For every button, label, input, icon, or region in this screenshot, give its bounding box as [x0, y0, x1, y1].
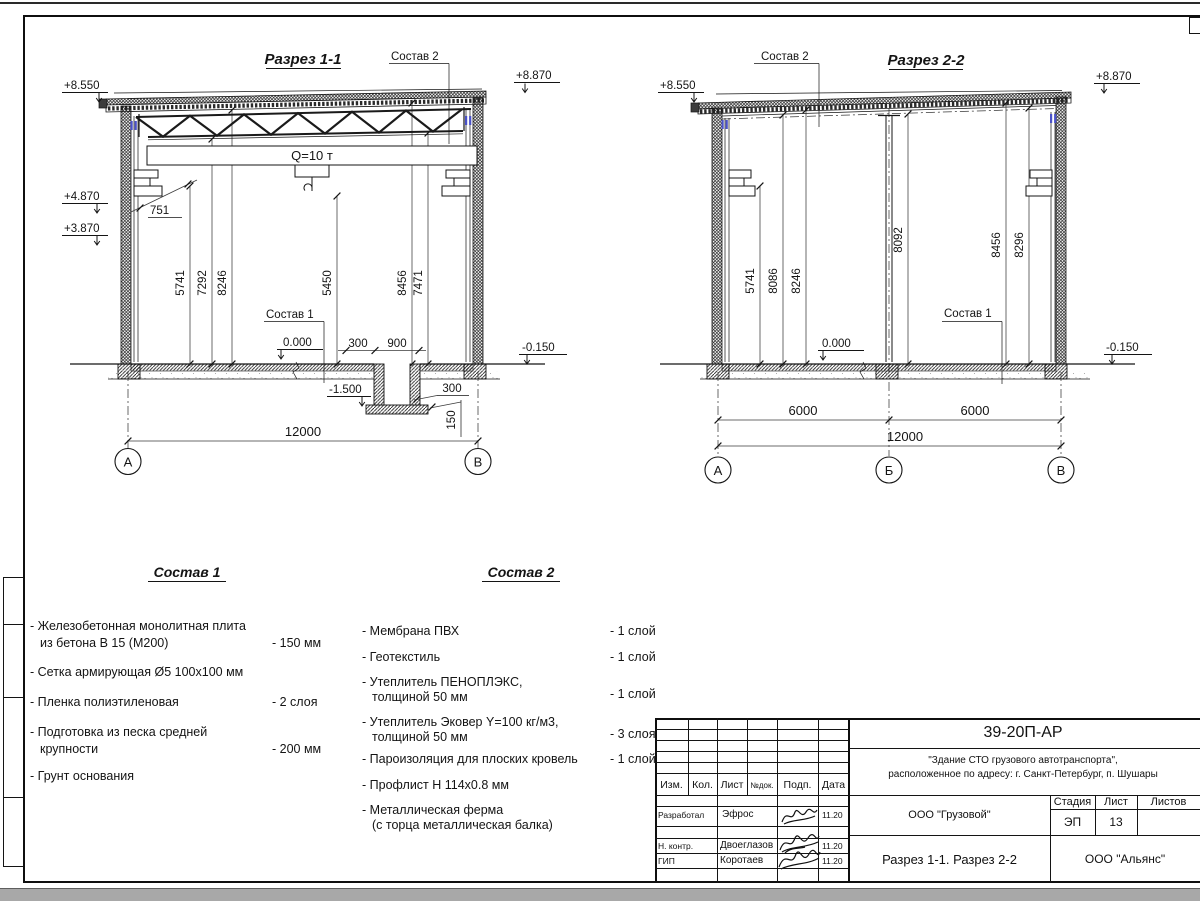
sostav1-item3-value: - 2 слоя	[272, 695, 317, 709]
section-2-2: Разрез 2-2	[658, 51, 1152, 483]
pit-width-label: 900	[387, 338, 406, 350]
sheets-label: Листов	[1137, 795, 1200, 809]
sostav2-item4-value: - 3 слоя	[610, 727, 655, 741]
bay2-6000: 6000	[961, 403, 990, 418]
signature-3	[775, 845, 823, 873]
section2-span: 6000 6000 12000 А Б В	[705, 372, 1074, 483]
axis2-b-bub: Б	[885, 463, 894, 478]
sostav1-item2-line1: - Сетка армирующая Ø5 100х100 мм	[30, 665, 243, 679]
stamp-l-r2	[655, 740, 849, 741]
section1-dim-lines: 5741 7292 8246 5450 8456 7471	[175, 100, 431, 368]
sostav1-title: Состав 1	[148, 564, 226, 582]
stamp-doc-bottom	[849, 748, 1200, 749]
elev2-8550: +8.550	[660, 80, 696, 92]
span2-12000: 12000	[887, 429, 923, 444]
sostav1-item1-line2: из бетона В 15 (М200)	[40, 636, 168, 650]
doc-number: 39-20П-АР	[849, 720, 1197, 746]
row1-role: Разработал	[658, 810, 704, 820]
sostav2-item5: - Пароизоляция для плоских кровель	[362, 752, 578, 766]
section2-consoles	[729, 170, 1052, 196]
sostav1-item3-line1: - Пленка полиэтиленовая	[30, 695, 179, 709]
callout2-sostav2: Состав 2	[761, 51, 809, 63]
elev-m1500: -1.500	[329, 384, 362, 396]
elev-8870: +8.870	[516, 70, 552, 82]
dim-7292: 7292	[197, 270, 209, 296]
sostav2-item2: - Геотекстиль	[362, 650, 440, 664]
sostav1-item5-line1: - Грунт основания	[30, 769, 134, 783]
dim2-8456: 8456	[991, 232, 1003, 258]
sheet-value: 13	[1095, 809, 1137, 835]
col-ndok-label: №док.	[747, 776, 777, 794]
stage-value: ЭП	[1050, 809, 1095, 835]
drawing-title: Разрез 1-1. Разрез 2-2	[849, 835, 1050, 883]
sostav1-item1-value: - 150 мм	[272, 636, 321, 650]
dim-7471: 7471	[413, 270, 425, 296]
section2-floor	[660, 362, 1135, 379]
section2-elevations: +8.550 +8.870 0.000 -0.150	[658, 71, 1152, 364]
section-1-1: Разрез 1-1	[62, 51, 567, 475]
sostav1-item4-line1: - Подготовка из песка средней	[30, 725, 207, 739]
dim2-8296: 8296	[1014, 232, 1026, 258]
sostav2-item1-value: - 1 слой	[610, 624, 656, 638]
row3-name: Коротаев	[720, 855, 763, 866]
dim-8246: 8246	[217, 270, 229, 296]
axis2-a-bubble: А	[714, 463, 723, 478]
dim2-8086: 8086	[768, 268, 780, 294]
elev2-0000: 0.000	[822, 338, 851, 350]
row2-role: Н. контр.	[658, 841, 693, 851]
sostav2-item4: - Утеплитель Эковер Y=100 кг/м3,	[362, 715, 558, 729]
axis-b-bubble: В	[474, 455, 483, 470]
section1-title: Разрез 1-1	[264, 51, 341, 68]
row1-date: 11.20	[822, 810, 843, 820]
stamp-left	[655, 718, 657, 883]
sostav2-item4b: толщиной 50 мм	[372, 730, 468, 744]
dim2-8246: 8246	[791, 268, 803, 294]
floor-slab	[70, 362, 545, 414]
callout-sostav2: Состав 2	[391, 51, 439, 63]
stamp-l-r4	[655, 762, 849, 763]
elev-0000: 0.000	[283, 337, 312, 349]
sostav2-item5-value: - 1 слой	[610, 752, 656, 766]
drawing-sheet: Разрез 1-1	[0, 0, 1200, 900]
pit-slab-label: 150	[446, 410, 458, 429]
stamp-l-r5	[655, 773, 849, 774]
sostav1-item4-line2: крупности	[40, 742, 98, 756]
section2-title: Разрез 2-2	[887, 52, 965, 69]
row2-date: 11.20	[822, 841, 843, 851]
stage-label: Стадия	[1050, 795, 1095, 809]
elev2-m0150: -0.150	[1106, 342, 1139, 354]
crane-beam: Q=10 т	[147, 146, 477, 191]
pit-wall-label: 300	[442, 383, 461, 395]
stamp-l-r3	[655, 751, 849, 752]
project-line2: расположенное по адресу: г. Санкт-Петерб…	[849, 768, 1197, 781]
dim-8456: 8456	[397, 270, 409, 296]
col-data-label: Дата	[818, 776, 849, 794]
sostav2-item3b: толщиной 50 мм	[372, 690, 468, 704]
crane-capacity-label: Q=10 т	[291, 148, 333, 163]
stamp-col-kol	[717, 718, 718, 883]
sostav1-item4-value: - 200 мм	[272, 742, 321, 756]
stamp-sig-r2	[655, 826, 849, 827]
dim-5741: 5741	[175, 270, 187, 296]
sostav2-item2-value: - 1 слой	[610, 650, 656, 664]
stamp-sig-r1	[655, 806, 849, 807]
sostav2-title: Состав 2	[482, 564, 560, 582]
sostav2-item3: - Утеплитель ПЕНОПЛЭКС,	[362, 675, 522, 689]
dim2-8092: 8092	[893, 227, 905, 253]
row3-date: 11.20	[822, 856, 843, 866]
roof-truss	[136, 107, 471, 140]
elev-8550: +8.550	[64, 80, 100, 92]
axis-a-bubble: А	[124, 455, 133, 470]
col-list-label: Лист	[717, 776, 747, 794]
stamp-l-r1	[655, 729, 849, 730]
sostav2-item1: - Мембрана ПВХ	[362, 624, 459, 638]
row3-role: ГИП	[658, 856, 675, 866]
elev-m0150: -0.150	[522, 342, 555, 354]
elev-4870: +4.870	[64, 191, 100, 203]
company-name: ООО "Альянс"	[1050, 835, 1200, 883]
sostav2-item7: - Металлическая ферма	[362, 803, 503, 817]
section1-span: 12000 А В	[115, 372, 491, 475]
callout-sostav1: Состав 1	[266, 309, 314, 321]
col-izm-label: Изм.	[655, 776, 688, 794]
project-line1: "Здание СТО грузового автотранспорта",	[849, 754, 1197, 767]
sostav2-item7b: (с торца металлическая балка)	[372, 818, 553, 832]
row2-name: Двоеглазов	[720, 840, 773, 851]
elev-3870: +3.870	[64, 223, 100, 235]
axis2-v-bubble: В	[1057, 463, 1066, 478]
pit-offset-label: 300	[348, 338, 367, 350]
bay1-6000: 6000	[789, 403, 818, 418]
span-12000: 12000	[285, 424, 321, 439]
sostav1-item1-line1: - Железобетонная монолитная плита	[30, 619, 246, 633]
client-name: ООО "Грузовой"	[849, 795, 1050, 835]
row1-name: Эфрос	[722, 809, 754, 820]
sheet-label: Лист	[1095, 795, 1137, 809]
dim-751-label: 751	[150, 205, 169, 217]
sostav2-item3-value: - 1 слой	[610, 687, 656, 701]
col-podp-label: Подп.	[777, 776, 818, 794]
elev2-8870: +8.870	[1096, 71, 1132, 83]
dim-5450: 5450	[322, 270, 334, 296]
sostav2-item6: - Профлист Н 114х0.8 мм	[362, 778, 509, 792]
signature-1	[779, 805, 819, 827]
callout2-sostav1: Состав 1	[944, 308, 992, 320]
stamp-l-header-bottom	[655, 795, 849, 796]
col-kol-label: Кол.	[688, 776, 717, 794]
dim2-5741: 5741	[745, 268, 757, 294]
